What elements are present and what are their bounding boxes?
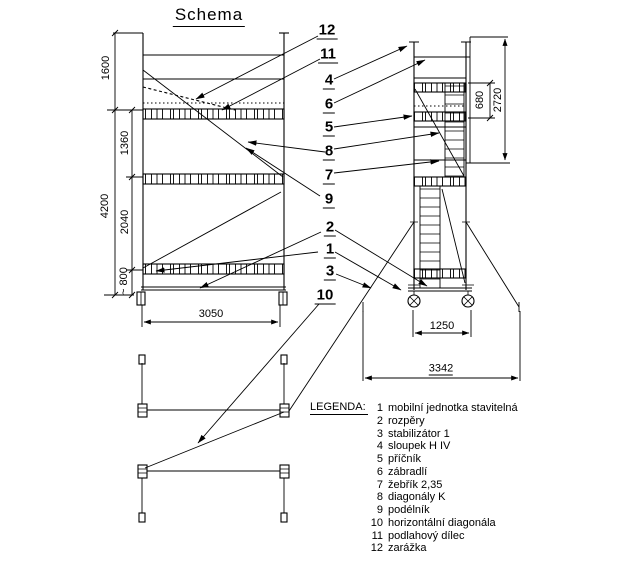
callout-6: 6 [323, 97, 335, 114]
dim-platform-length: 3050 [199, 308, 223, 320]
legend-item-number: 1 [350, 402, 388, 415]
callout-4: 4 [323, 73, 335, 90]
legend-item-number: 9 [350, 504, 388, 517]
legend-item-label: sloupek H IV [388, 440, 450, 453]
legend-item-number: 4 [350, 440, 388, 453]
legend-item-label: horizontální diagonála [388, 517, 496, 530]
legend-item-number: 11 [350, 530, 388, 543]
legend-item: 11podlahový dílec [350, 530, 518, 543]
legend-item: 3stabilizátor 1 [350, 428, 518, 441]
dim-upper-bay: 1360 [119, 131, 131, 155]
legend-item: 1mobilní jednotka stavitelná [350, 402, 518, 415]
dim-total-height: 4200 [99, 194, 111, 218]
legend-item-label: podlahový dílec [388, 530, 464, 543]
callout-12: 12 [317, 23, 338, 40]
legend-item-label: rozpěry [388, 415, 425, 428]
legend-item-label: mobilní jednotka stavitelná [388, 402, 518, 415]
legend-item: 10horizontální diagonála [350, 517, 518, 530]
legend-item-label: zarážka [388, 542, 427, 555]
dim-frame-width: 1250 [430, 320, 454, 332]
callout-2: 2 [324, 220, 336, 237]
legend-item: 5příčník [350, 453, 518, 466]
callout-7: 7 [323, 168, 335, 185]
legend: 1mobilní jednotka stavitelná 2rozpěry 3s… [350, 402, 518, 555]
dim-guardrail-height: 1600 [100, 56, 112, 80]
legend-item: 2rozpěry [350, 415, 518, 428]
callout-5: 5 [323, 120, 335, 137]
drawing-title: Schema [173, 5, 245, 27]
scaffold-schema-drawing: Schema 1600 4200 1360 2040 ~ 800 3050 68… [0, 0, 640, 564]
dim-platform-offset: 680 [474, 91, 486, 109]
legend-item: 7žebřík 2,35 [350, 479, 518, 492]
legend-item-label: příčník [388, 453, 421, 466]
legend-item-label: žebřík 2,35 [388, 479, 442, 492]
legend-item: 8diagonály K [350, 491, 518, 504]
legend-item-number: 5 [350, 453, 388, 466]
callout-9: 9 [323, 192, 335, 209]
legend-item-number: 8 [350, 491, 388, 504]
legend-item-label: podélník [388, 504, 430, 517]
dim-upper-height: 2720 [492, 88, 504, 112]
legend-item-label: zábradlí [388, 466, 427, 479]
plan-view-drawing [138, 355, 289, 522]
technical-line-art [0, 0, 640, 564]
legend-item-label: stabilizátor 1 [388, 428, 450, 441]
dim-lower-bay: 2040 [119, 210, 131, 234]
legend-item: 9podélník [350, 504, 518, 517]
callout-8: 8 [323, 144, 335, 161]
legend-item: 6zábradlí [350, 466, 518, 479]
legend-item-number: 7 [350, 479, 388, 492]
legend-item-number: 12 [350, 542, 388, 555]
legend-item: 4sloupek H IV [350, 440, 518, 453]
leader-lines [156, 36, 439, 443]
callout-10: 10 [315, 288, 336, 305]
dim-base-height: ~ 800 [118, 267, 130, 295]
legend-item-label: diagonály K [388, 491, 446, 504]
legend-item-number: 6 [350, 466, 388, 479]
callout-11: 11 [318, 47, 338, 64]
legend-item: 12zarážka [350, 542, 518, 555]
dim-stabilizer-span: 3342 [429, 363, 453, 376]
legend-item-number: 3 [350, 428, 388, 441]
legend-item-number: 2 [350, 415, 388, 428]
callout-3: 3 [324, 264, 336, 281]
legend-item-number: 10 [350, 517, 388, 530]
callout-1: 1 [324, 242, 336, 259]
